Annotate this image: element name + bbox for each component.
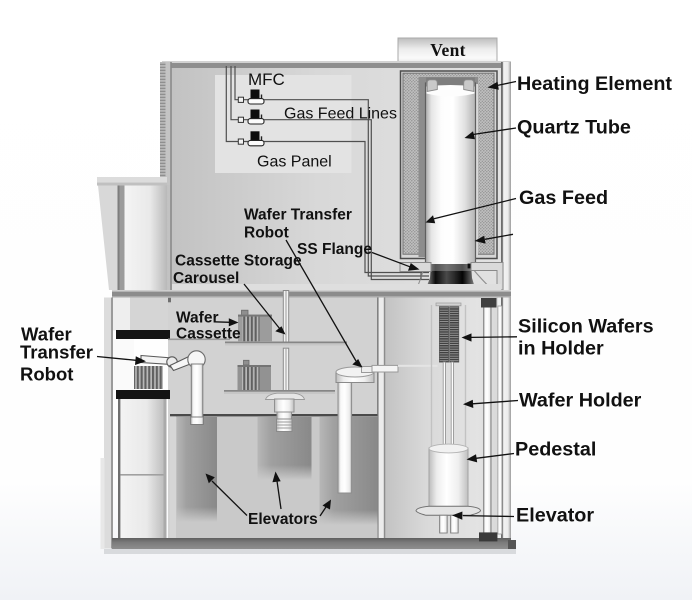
svg-text:Elevators: Elevators — [248, 511, 318, 528]
svg-text:MFC: MFC — [248, 70, 285, 89]
svg-text:Carousel: Carousel — [173, 270, 239, 287]
svg-text:Vent: Vent — [430, 40, 466, 60]
svg-text:Cassette: Cassette — [176, 326, 241, 343]
svg-text:SS Flange: SS Flange — [297, 241, 372, 258]
svg-text:Transfer: Transfer — [20, 342, 93, 363]
svg-text:Heating Element: Heating Element — [517, 73, 672, 95]
svg-text:Gas Feed: Gas Feed — [519, 187, 608, 209]
svg-text:Wafer Transfer: Wafer Transfer — [244, 207, 352, 224]
svg-text:Pedestal: Pedestal — [515, 439, 596, 461]
svg-text:Robot: Robot — [244, 225, 289, 242]
svg-text:Cassette Storage: Cassette Storage — [175, 253, 302, 270]
svg-text:Elevator: Elevator — [516, 505, 594, 527]
svg-text:Gas Panel: Gas Panel — [257, 154, 332, 171]
svg-text:Quartz Tube: Quartz Tube — [517, 117, 631, 139]
svg-text:Robot: Robot — [20, 364, 73, 385]
svg-text:Silicon Wafers: Silicon Wafers — [518, 316, 654, 338]
svg-text:Gas Feed Lines: Gas Feed Lines — [284, 106, 397, 123]
svg-text:in Holder: in Holder — [518, 338, 604, 360]
svg-text:Wafer Holder: Wafer Holder — [519, 390, 642, 412]
svg-text:Wafer: Wafer — [176, 310, 219, 327]
